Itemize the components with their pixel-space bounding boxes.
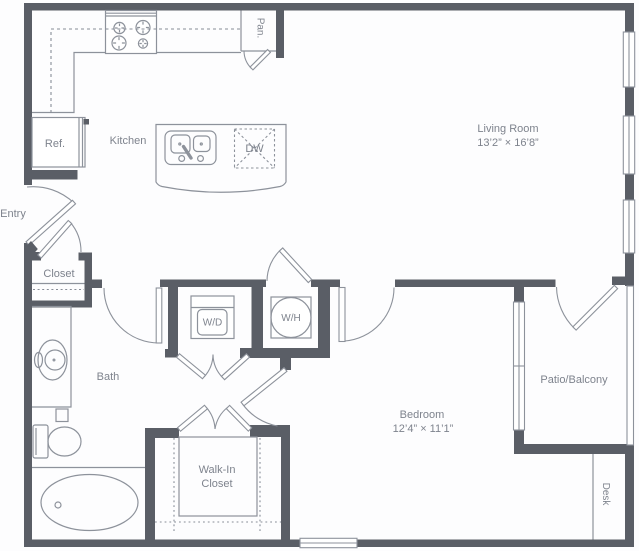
- svg-text:Kitchen: Kitchen: [110, 135, 147, 147]
- svg-text:Ref.: Ref.: [45, 138, 65, 150]
- svg-text:Bedroom: Bedroom: [400, 409, 445, 421]
- svg-text:W/H: W/H: [281, 313, 300, 324]
- svg-text:Entry: Entry: [0, 208, 26, 220]
- svg-text:Closet: Closet: [201, 478, 232, 490]
- svg-text:Walk-In: Walk-In: [199, 464, 236, 476]
- svg-text:Living Room: Living Room: [477, 123, 538, 135]
- svg-text:W/D: W/D: [203, 318, 222, 329]
- svg-text:Bath: Bath: [97, 371, 120, 383]
- svg-text:Desk: Desk: [600, 483, 611, 507]
- svg-text:Closet: Closet: [43, 268, 74, 280]
- svg-text:Patio/Balcony: Patio/Balcony: [540, 374, 608, 386]
- svg-text:13’2” × 16’8”: 13’2” × 16’8”: [477, 137, 539, 149]
- svg-text:DW: DW: [245, 143, 264, 155]
- svg-text:12’4” × 11’1”: 12’4” × 11’1”: [393, 423, 454, 435]
- svg-text:Pan.: Pan.: [255, 18, 266, 39]
